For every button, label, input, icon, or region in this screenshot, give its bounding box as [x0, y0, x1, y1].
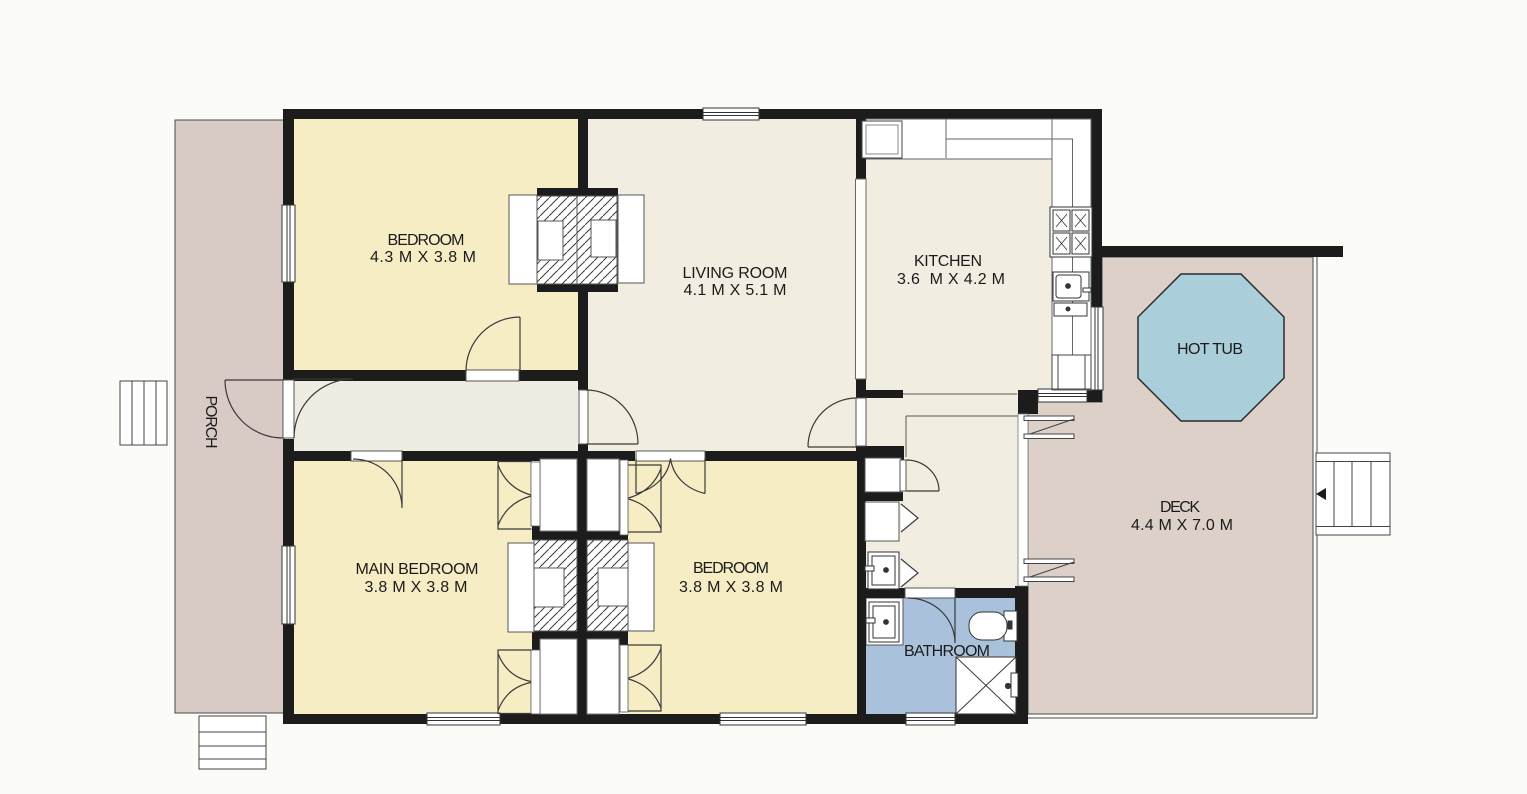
svg-text:4.4 M X 7.0 M: 4.4 M X 7.0 M	[1131, 517, 1233, 534]
svg-text:3.6 M X 4.2 M: 3.6 M X 4.2 M	[897, 271, 1005, 288]
svg-text:KITCHEN: KITCHEN	[914, 253, 982, 270]
svg-text:4.1 M X 5.1 M: 4.1 M X 5.1 M	[684, 282, 787, 299]
svg-text:MAIN BEDROOM: MAIN BEDROOM	[356, 561, 479, 578]
svg-text:3.8 M X 3.8 M: 3.8 M X 3.8 M	[365, 579, 468, 596]
svg-text:BATHROOM: BATHROOM	[904, 643, 990, 660]
svg-text:HOT TUB: HOT TUB	[1177, 341, 1243, 358]
svg-text:DECK: DECK	[1160, 499, 1200, 516]
svg-text:PORCH: PORCH	[202, 396, 219, 449]
svg-text:4.3 M X 3.8 M: 4.3 M X 3.8 M	[370, 249, 476, 266]
svg-text:BEDROOM: BEDROOM	[388, 232, 465, 249]
svg-text:LIVING ROOM: LIVING ROOM	[683, 265, 788, 282]
svg-text:BEDROOM: BEDROOM	[693, 560, 769, 577]
svg-text:3.8 M X 3.8 M: 3.8 M X 3.8 M	[679, 579, 783, 596]
